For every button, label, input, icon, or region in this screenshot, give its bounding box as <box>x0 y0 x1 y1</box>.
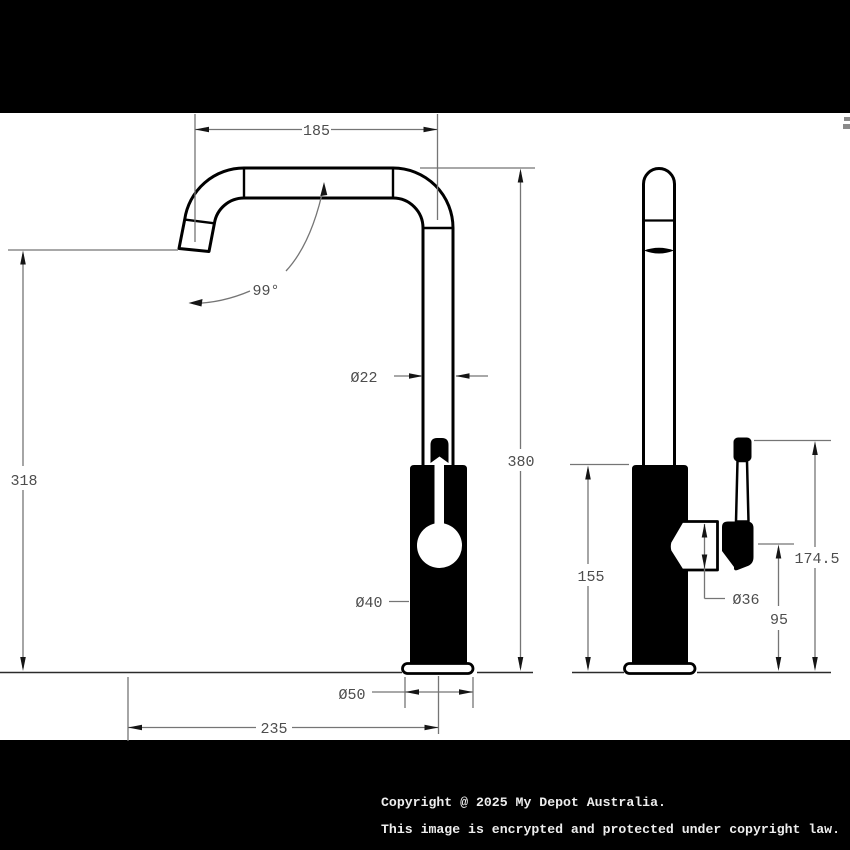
knob-side <box>734 438 752 462</box>
riser-walls <box>423 228 453 465</box>
dim-label-pipe-diameter: Ø22 <box>350 370 377 387</box>
dim-label-spout-outlet-height: 318 <box>10 473 37 490</box>
cartridge-slot <box>435 465 445 525</box>
arrowhead <box>456 373 470 379</box>
spout-outlet-side <box>644 248 674 254</box>
dim-body-height: 155 <box>570 465 629 672</box>
dim-label-body-diameter: Ø40 <box>355 595 382 612</box>
handle-pivot <box>417 523 462 568</box>
dim-spout-reach: 235 <box>128 677 439 741</box>
arrowhead <box>424 127 438 133</box>
cartridge-cap <box>669 522 717 571</box>
dim-label-handle-diameter: Ø36 <box>732 592 759 609</box>
handle-side <box>722 522 754 571</box>
dim-spout-width: 185 <box>195 114 438 242</box>
dim-base-diameter: Ø50 <box>338 676 473 734</box>
dim-label-handle-pivot-height: 95 <box>770 612 788 629</box>
arrowhead <box>518 169 524 183</box>
base-plate-side <box>625 664 696 674</box>
arrowhead <box>585 657 591 671</box>
copyright-line-2: This image is encrypted and protected un… <box>381 822 840 837</box>
arrowhead <box>812 657 818 671</box>
tube-side <box>644 169 675 466</box>
arrowhead <box>20 251 26 265</box>
dim-label-body-height: 155 <box>577 569 604 586</box>
arrowhead <box>425 725 439 731</box>
dim-label-spout-angle: 99° <box>252 283 279 300</box>
arrowhead <box>585 466 591 480</box>
arrowhead <box>812 441 818 455</box>
arrowhead <box>20 657 26 671</box>
dim-body-diameter: Ø40 <box>355 595 409 612</box>
base-plate-front <box>403 664 474 674</box>
spout-outline <box>179 168 453 252</box>
edge-artifact <box>844 117 850 121</box>
arrowhead <box>189 299 203 307</box>
arrowhead <box>320 182 327 196</box>
arrowhead <box>459 689 473 695</box>
dim-spout-outlet-height: 318 <box>8 250 178 671</box>
dim-label-spout-width: 185 <box>303 123 330 140</box>
extension-lines <box>405 676 473 734</box>
arrowhead <box>776 657 782 671</box>
dim-pipe-diameter: Ø22 <box>350 370 488 387</box>
lever-side <box>736 461 749 522</box>
arrowhead <box>128 725 142 731</box>
dim-label-spout-reach: 235 <box>260 721 287 738</box>
dim-label-handle-top-height: 174.5 <box>794 551 839 568</box>
arrowhead <box>195 127 209 133</box>
dim-label-base-diameter: Ø50 <box>338 687 365 704</box>
arrowhead <box>518 657 524 671</box>
technical-drawing: 185 99° Ø22 380 <box>0 0 850 850</box>
copyright-line-1: Copyright @ 2025 My Depot Australia. <box>381 795 666 810</box>
dim-handle-pivot-height: 95 <box>758 544 794 671</box>
arrowhead <box>405 689 419 695</box>
dim-handle-top-height: 174.5 <box>754 441 840 672</box>
front-view <box>179 168 473 674</box>
drawing-page: 185 99° Ø22 380 <box>0 0 850 850</box>
dim-label-overall-height: 380 <box>507 454 534 471</box>
edge-artifact <box>843 124 850 129</box>
arrowhead <box>776 545 782 559</box>
handle-knob-front <box>431 438 449 463</box>
arrowhead <box>409 373 423 379</box>
